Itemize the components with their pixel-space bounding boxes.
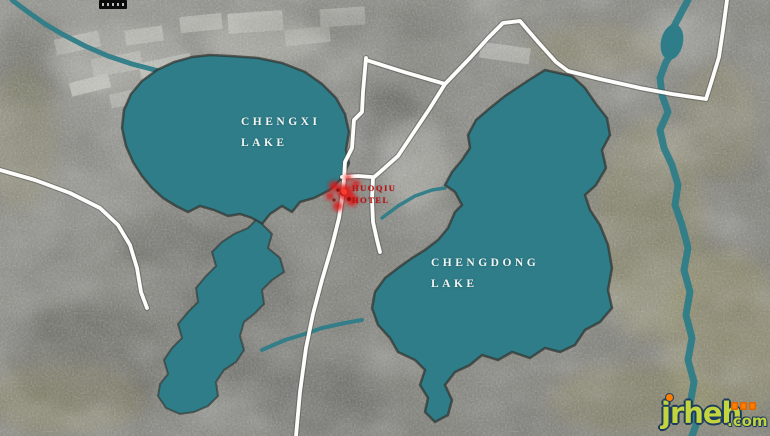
marker-label-line2: HOTEL xyxy=(352,194,396,206)
map-label-chip-text xyxy=(102,3,124,6)
watermark-tld-text: .com xyxy=(727,412,768,430)
satellite-map-canvas xyxy=(0,0,770,436)
watermark-cn-badge-icon xyxy=(731,402,756,410)
chengxi-lake-label-line1: CHENGXI xyxy=(241,112,320,133)
watermark-dot-icon xyxy=(666,394,673,401)
map-label-chip xyxy=(99,0,127,9)
satellite-map-figure: CHENGXI LAKE CHENGDONG LAKE HUOQIU HOTEL… xyxy=(0,0,770,436)
chengdong-lake-label-line2: LAKE xyxy=(431,274,539,295)
chengdong-lake-label-line1: CHENGDONG xyxy=(431,253,539,274)
marker-label-line1: HUOQIU xyxy=(352,182,396,194)
chengdong-lake-label: CHENGDONG LAKE xyxy=(431,253,539,295)
watermark: jrheh .com xyxy=(659,390,770,436)
chengxi-lake-label-line2: LAKE xyxy=(241,133,320,154)
marker-label: HUOQIU HOTEL xyxy=(352,182,396,206)
chengxi-lake-label: CHENGXI LAKE xyxy=(241,112,320,154)
